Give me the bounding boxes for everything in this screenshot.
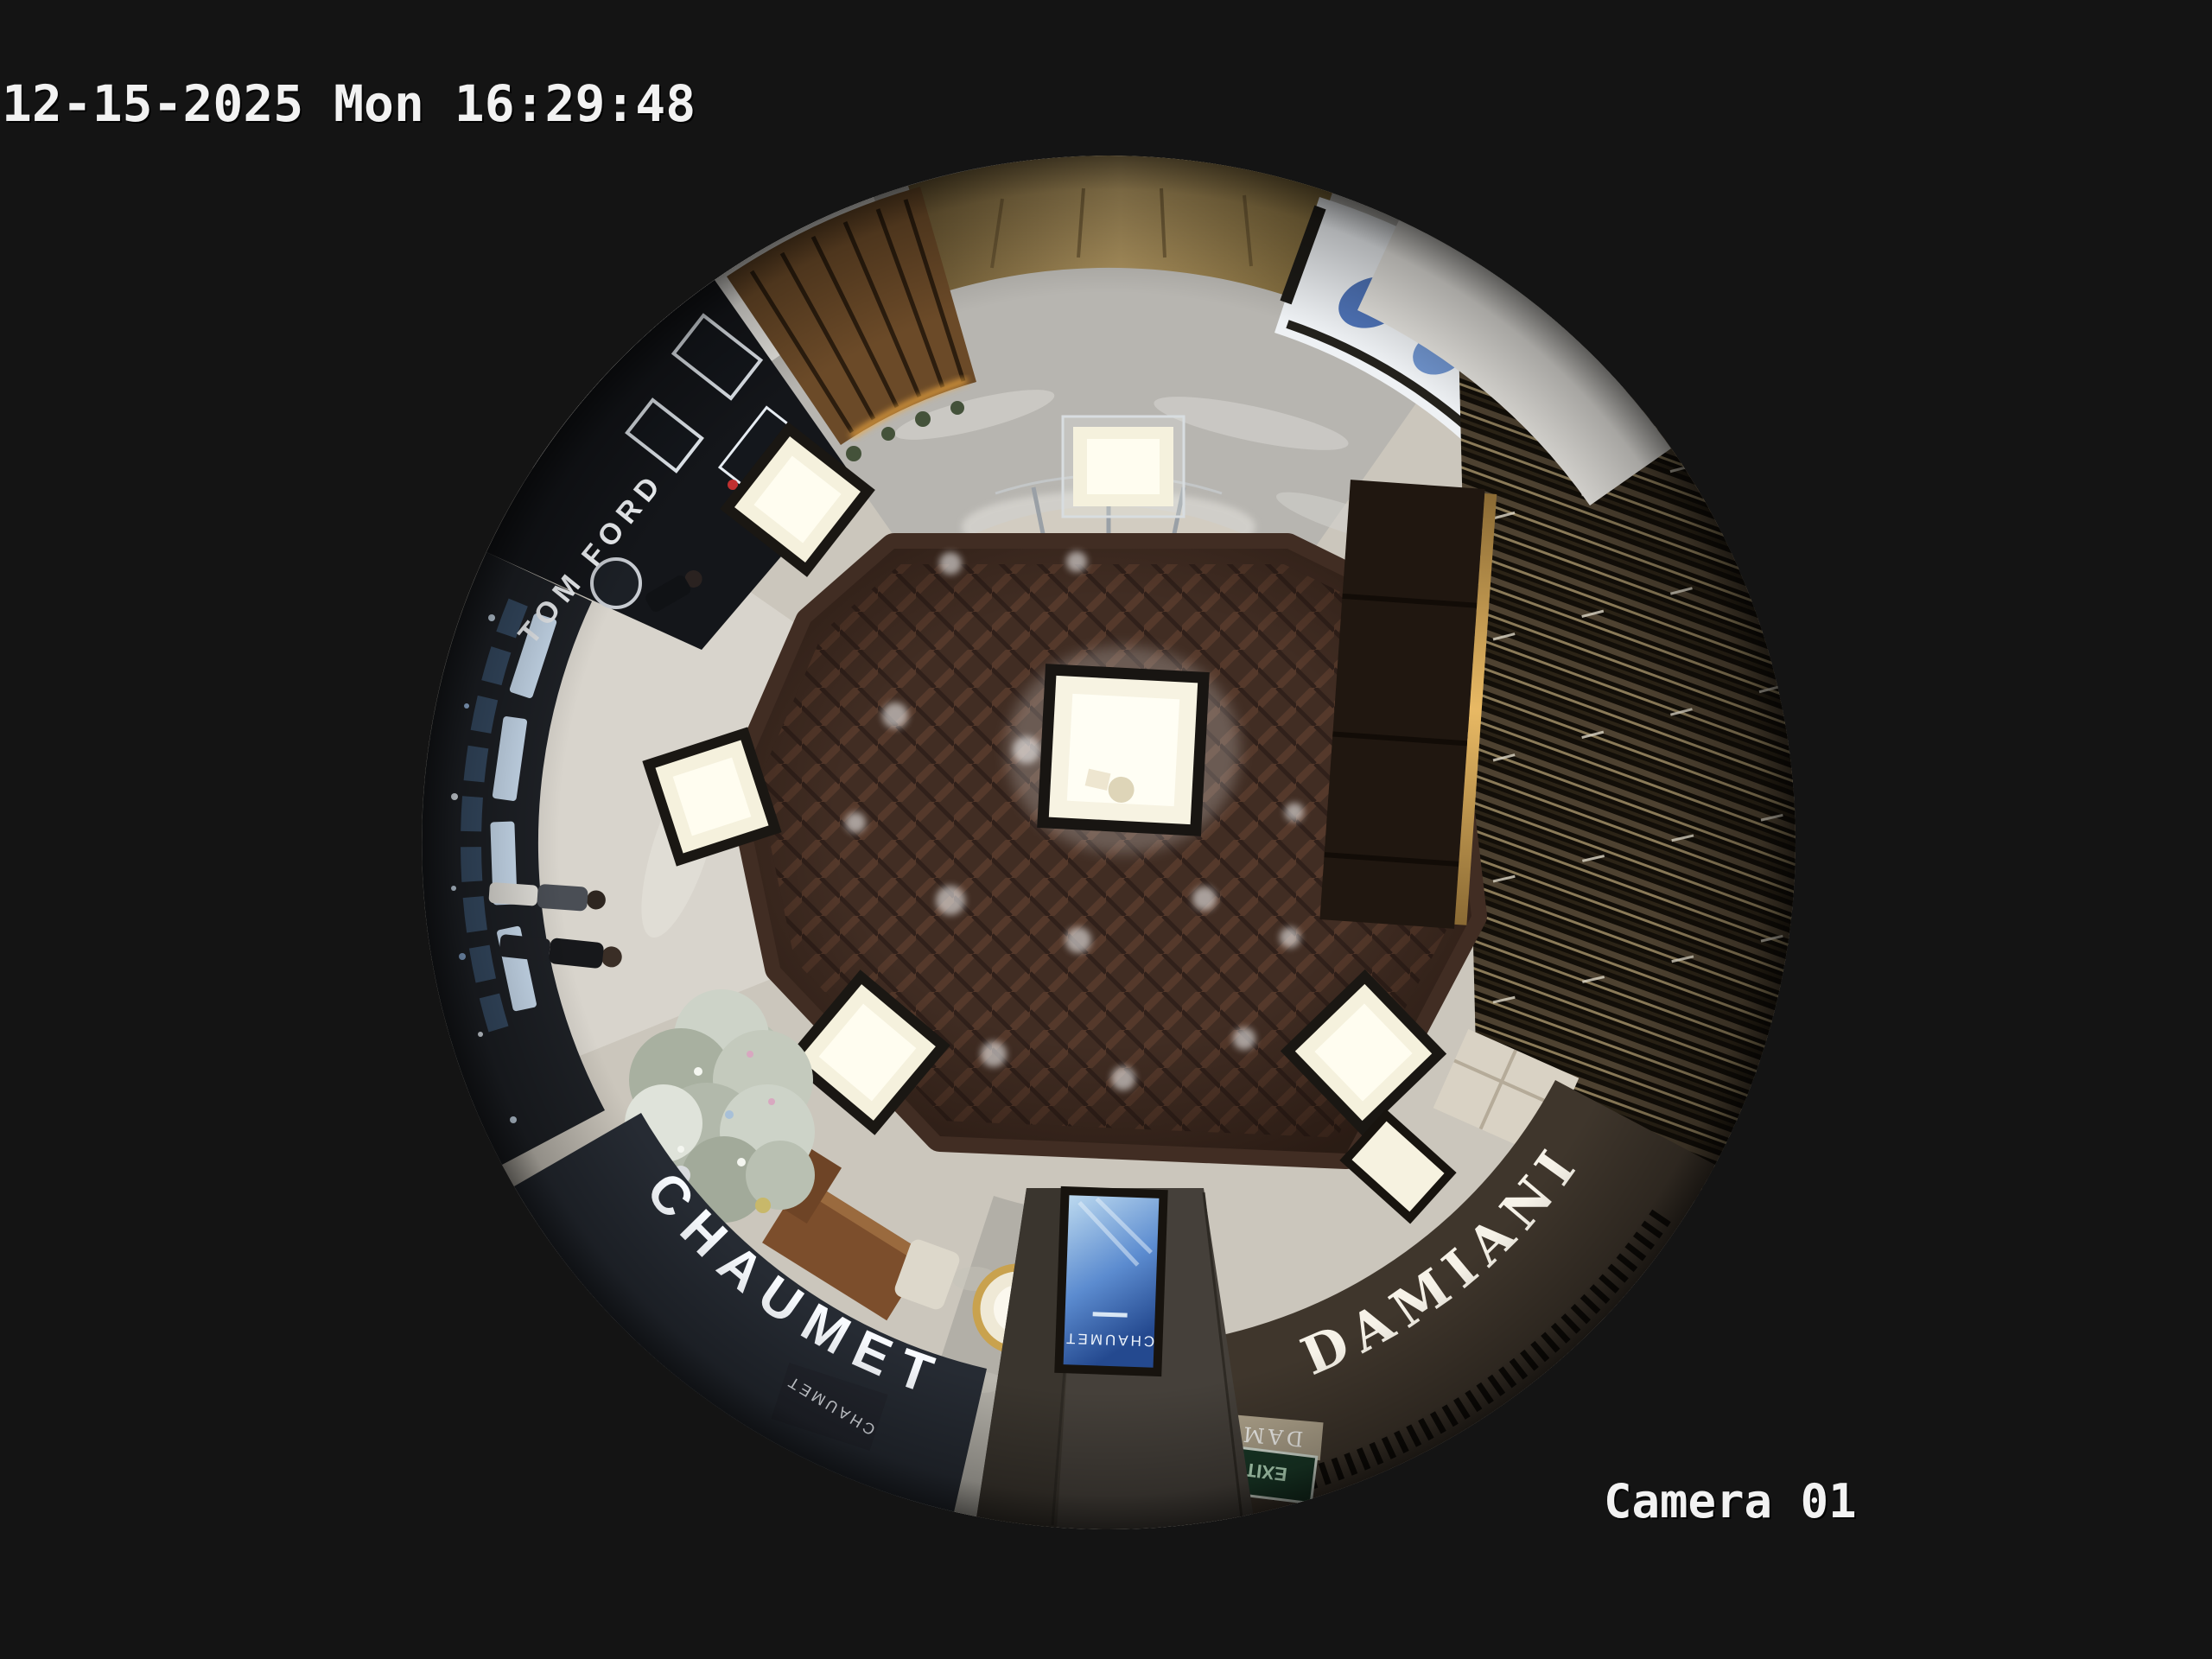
cctv-viewport: 12-15-2025 Mon 16:29:48 Camera 01 <box>0 0 2212 1659</box>
lens-vignette <box>422 156 1796 1529</box>
fisheye-video: TOM FORD <box>422 156 1796 1529</box>
osd-timestamp: 12-15-2025 Mon 16:29:48 <box>2 74 696 133</box>
